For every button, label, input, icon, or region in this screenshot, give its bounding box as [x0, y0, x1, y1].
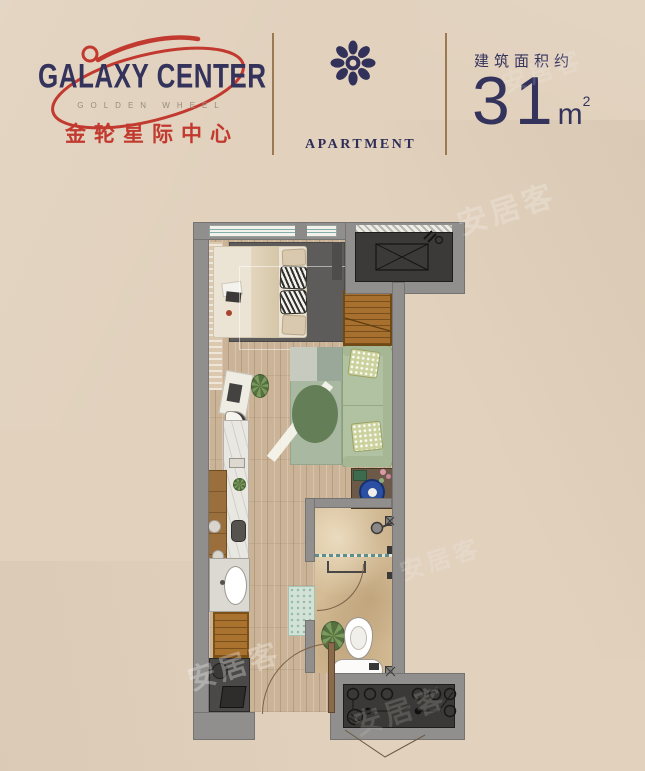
- flowers: [380, 469, 386, 475]
- apartment-brand: APARTMENT: [305, 33, 401, 155]
- area-value: 31: [472, 63, 558, 139]
- sofa-pillow: [347, 348, 380, 379]
- sofa-pillow: [351, 421, 384, 453]
- toilet-bowl: [350, 626, 367, 650]
- area-unit: m: [558, 98, 583, 131]
- wardrobe: [343, 290, 392, 346]
- shower-glass-partition: [315, 554, 392, 557]
- corridor-service-panel: [343, 684, 455, 728]
- window: [209, 225, 337, 237]
- header-divider: [445, 33, 447, 155]
- floor-plan: [193, 222, 465, 740]
- pot: [212, 663, 228, 679]
- bed-pillow: [282, 248, 307, 266]
- area-unit-sup: 2: [583, 93, 591, 109]
- counter-plant: [233, 478, 246, 491]
- window-mullion: [295, 223, 307, 239]
- wall-bottom: [193, 712, 255, 740]
- kitchen-sink: [224, 566, 247, 605]
- bathroom-wall-top: [305, 498, 392, 508]
- area-info: 建筑面积约 31m2: [462, 40, 622, 155]
- plant: [251, 374, 269, 398]
- cup: [226, 310, 232, 316]
- flowers: [386, 474, 391, 479]
- plate: [208, 520, 221, 533]
- brand-chinese-name: 金轮星际中心: [38, 118, 258, 148]
- brand-title: GALAXY CENTER: [38, 56, 258, 97]
- kitchen-cabinet: [213, 612, 249, 658]
- blue-bowl-center: [368, 488, 377, 497]
- apartment-label: APARTMENT: [305, 137, 401, 153]
- ac-platform: [355, 232, 453, 282]
- counter-tray: [229, 458, 245, 468]
- stool: [231, 520, 246, 542]
- wall-right: [392, 282, 405, 680]
- bathroom-wall-left: [305, 498, 315, 562]
- brand-subtitle: GOLDEN WHEEL: [38, 101, 258, 110]
- watermark: 安居客: [451, 170, 562, 243]
- wall-left: [193, 222, 209, 740]
- header-divider: [272, 33, 274, 155]
- sofa-seam: [343, 405, 383, 406]
- floorplan-card: GALAXY CENTER GOLDEN WHEEL 金轮星际中心 APARTM…: [0, 0, 645, 771]
- bedside-shelf: [332, 242, 342, 280]
- area-value-row: 31m2: [472, 64, 590, 139]
- flower-icon: [327, 37, 379, 89]
- flowers: [379, 478, 384, 483]
- living-rug-block: [317, 347, 342, 381]
- ac-platform-vent: [356, 225, 452, 232]
- hob: [219, 686, 246, 708]
- faucet: [220, 580, 225, 585]
- living-rug-circle: [292, 385, 338, 443]
- living-rug-block: [290, 347, 317, 381]
- sofa-backrest: [383, 348, 392, 465]
- water-heater-panel: [369, 663, 379, 670]
- book: [353, 470, 367, 481]
- brand-logo: GALAXY CENTER GOLDEN WHEEL 金轮星际中心: [38, 30, 258, 156]
